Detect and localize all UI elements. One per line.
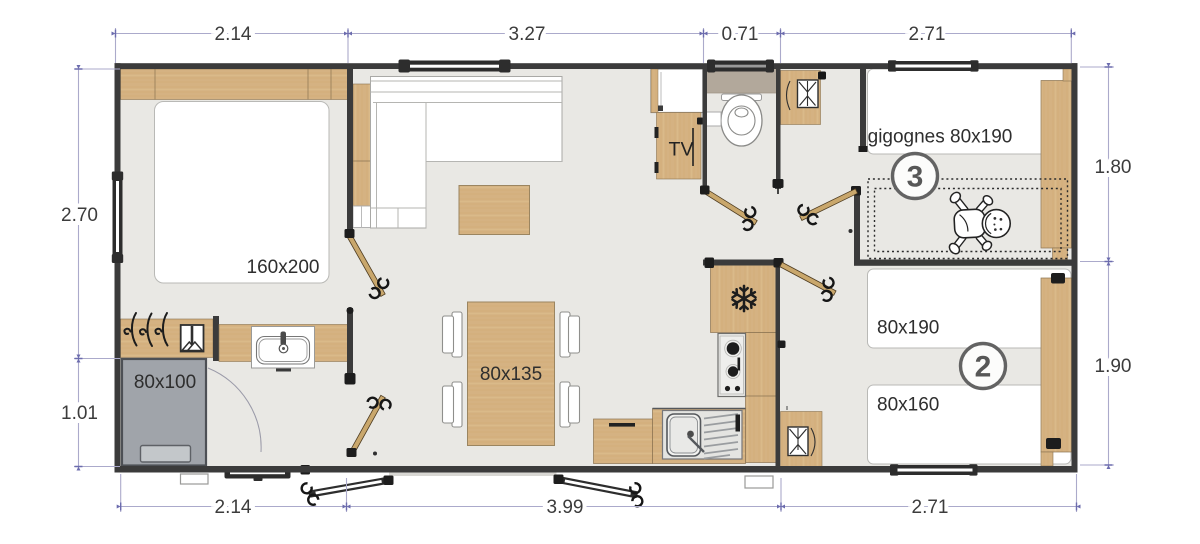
svg-text:1.01: 1.01 bbox=[61, 403, 98, 424]
svg-text:80x135: 80x135 bbox=[480, 364, 542, 385]
svg-text:0.71: 0.71 bbox=[722, 24, 759, 45]
svg-text:3.99: 3.99 bbox=[547, 497, 584, 518]
svg-text:1.80: 1.80 bbox=[1095, 157, 1132, 178]
svg-text:2.71: 2.71 bbox=[909, 24, 946, 45]
svg-text:2.71: 2.71 bbox=[912, 497, 949, 518]
svg-text:TV: TV bbox=[669, 139, 694, 161]
svg-text:80x190: 80x190 bbox=[877, 318, 939, 339]
svg-text:160x200: 160x200 bbox=[247, 257, 320, 278]
svg-text:1.90: 1.90 bbox=[1095, 356, 1132, 377]
svg-text:2.14: 2.14 bbox=[215, 497, 252, 518]
svg-text:3: 3 bbox=[907, 161, 924, 194]
svg-text:80x160: 80x160 bbox=[877, 395, 939, 416]
svg-text:gigognes 80x190: gigognes 80x190 bbox=[868, 127, 1013, 148]
svg-text:2.14: 2.14 bbox=[215, 24, 252, 45]
svg-text:80x100: 80x100 bbox=[134, 372, 196, 393]
svg-text:2.70: 2.70 bbox=[61, 205, 98, 226]
svg-text:3.27: 3.27 bbox=[509, 24, 546, 45]
svg-text:2: 2 bbox=[975, 351, 992, 384]
